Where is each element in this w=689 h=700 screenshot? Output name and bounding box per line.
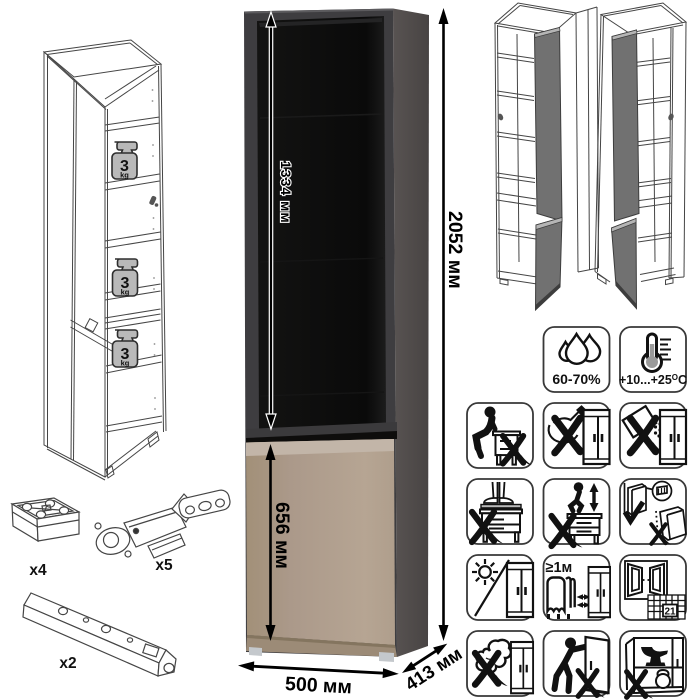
svg-text:x4: x4 [29, 562, 47, 579]
svg-text:x2: x2 [59, 655, 76, 672]
svg-text:60-70%: 60-70% [552, 371, 601, 387]
svg-text:x5: x5 [155, 557, 173, 574]
svg-text:656 мм: 656 мм [271, 502, 293, 569]
svg-text:≥1м: ≥1м [546, 560, 573, 576]
svg-text:2052 мм: 2052 мм [444, 211, 466, 289]
svg-text:1334 мм: 1334 мм [278, 161, 294, 224]
svg-text:500 мм: 500 мм [285, 673, 353, 698]
svg-text:21: 21 [664, 607, 676, 618]
